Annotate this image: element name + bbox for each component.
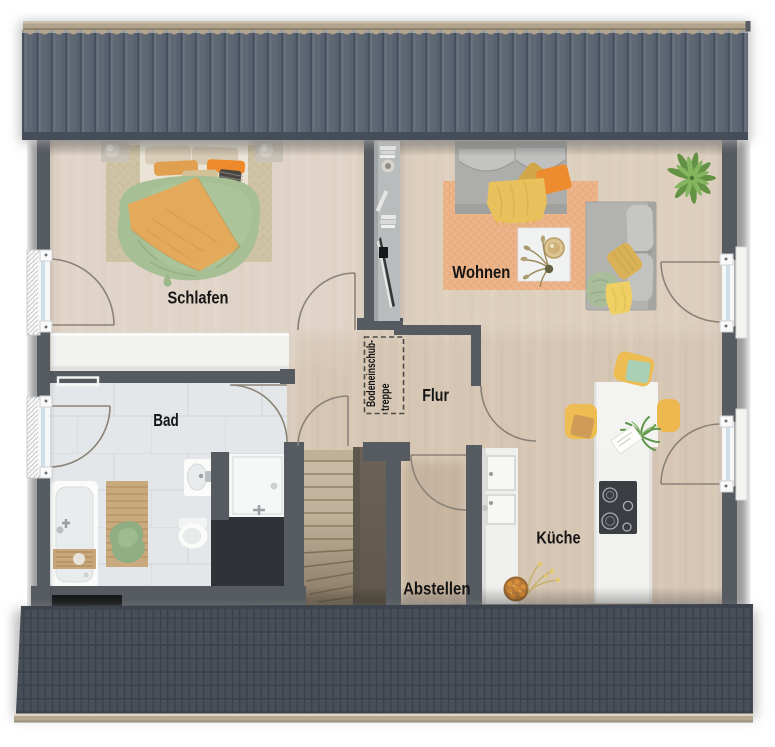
svg-text:treppe: treppe: [380, 384, 392, 412]
svg-text:Bodeneinschub-: Bodeneinschub-: [366, 340, 378, 407]
svg-text:Abstellen: Abstellen: [403, 579, 470, 599]
svg-text:Schlafen: Schlafen: [168, 288, 229, 308]
svg-text:Bad: Bad: [153, 410, 179, 430]
svg-text:Wohnen: Wohnen: [452, 262, 510, 282]
svg-text:Flur: Flur: [422, 385, 449, 405]
svg-text:Küche: Küche: [536, 527, 580, 547]
